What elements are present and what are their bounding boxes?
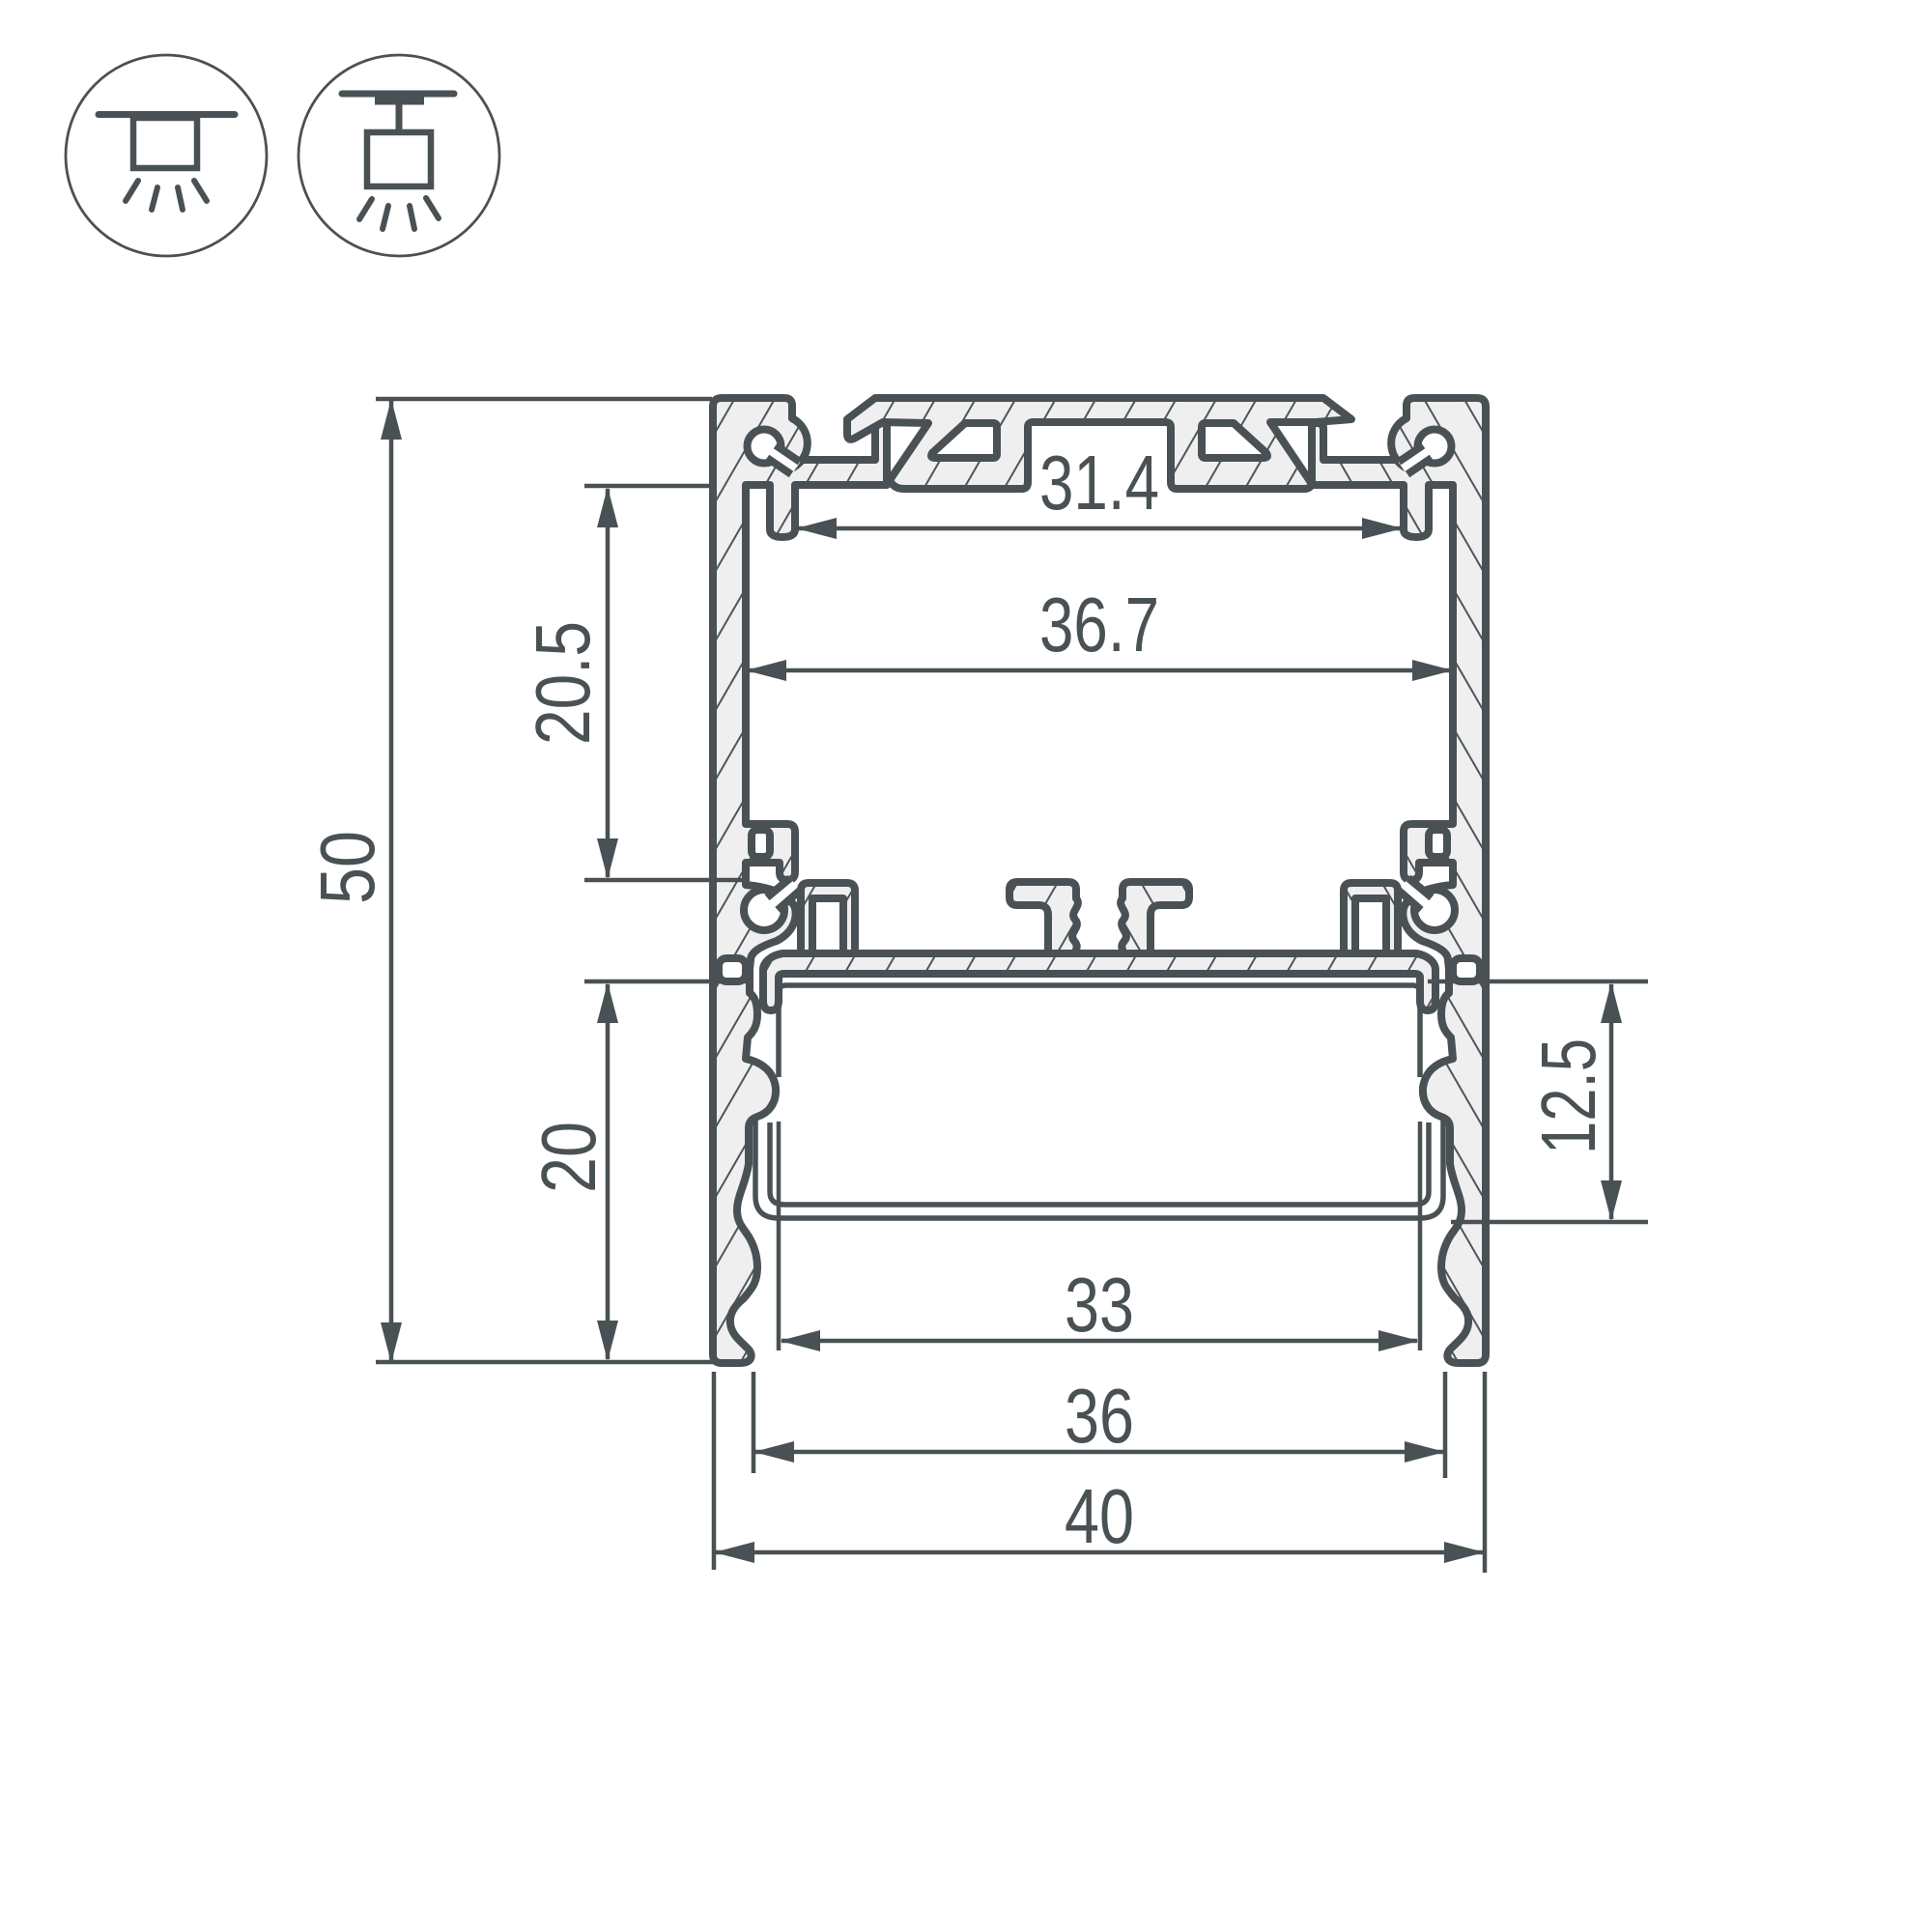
svg-text:36: 36 bbox=[1065, 1373, 1134, 1459]
svg-text:36.7: 36.7 bbox=[1039, 582, 1159, 668]
svg-text:50: 50 bbox=[304, 831, 390, 904]
svg-text:12.5: 12.5 bbox=[1525, 1038, 1611, 1154]
svg-text:33: 33 bbox=[1065, 1262, 1134, 1348]
svg-text:31.4: 31.4 bbox=[1039, 440, 1159, 526]
svg-text:20.5: 20.5 bbox=[520, 621, 606, 745]
svg-text:40: 40 bbox=[1065, 1473, 1134, 1559]
svg-text:20: 20 bbox=[526, 1122, 611, 1193]
